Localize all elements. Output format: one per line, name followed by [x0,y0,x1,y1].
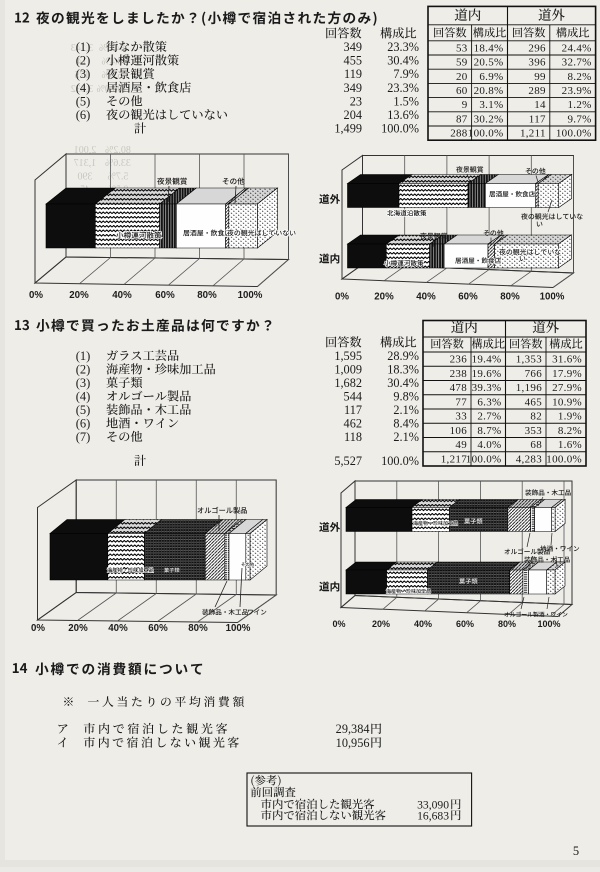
svg-text:0%: 0% [332,619,345,629]
svg-text:0%: 0% [31,623,45,634]
svg-text:0%: 0% [335,292,349,303]
svg-text:10.9%: 10.9% [552,396,582,408]
svg-text:14: 14 [534,99,546,111]
svg-text:2.1%: 2.1% [393,403,419,417]
svg-text:1,196: 1,196 [516,382,542,394]
svg-text:353: 353 [525,425,543,437]
svg-text:8.2%: 8.2% [558,425,582,437]
svg-text:3.1%: 3.1% [479,99,503,111]
svg-text:10,956: 10,956 [336,736,370,750]
svg-text:27.9%: 27.9% [552,382,582,394]
svg-text:20%: 20% [372,619,390,629]
svg-text:204: 204 [344,108,362,122]
svg-text:28.9%: 28.9% [387,349,419,363]
svg-text:(5): (5) [76,94,91,108]
svg-text:23.9%: 23.9% [562,85,592,97]
svg-text:(3): (3) [76,376,91,390]
svg-text:20%: 20% [69,290,89,301]
svg-text:(1): (1) [76,40,91,54]
svg-text:1,211: 1,211 [520,128,546,140]
svg-text:455: 455 [344,54,362,68]
svg-text:(5): (5) [76,403,91,417]
svg-text:465: 465 [525,396,543,408]
svg-text:100%: 100% [226,623,251,634]
svg-text:23.3%: 23.3% [387,40,419,54]
svg-text:1,217: 1,217 [441,453,467,465]
svg-text:77: 77 [455,396,467,408]
svg-text:13.6%: 13.6% [387,108,419,122]
svg-text:20%: 20% [68,623,88,634]
svg-text:289: 289 [528,85,546,97]
svg-text:1,353: 1,353 [516,354,542,366]
svg-text:462: 462 [344,417,362,431]
svg-text:30.2%: 30.2% [474,113,504,125]
svg-text:8.2%: 8.2% [567,71,591,83]
svg-text:59: 59 [456,57,468,69]
svg-text:1,009: 1,009 [334,363,362,377]
svg-text:39.3%: 39.3% [472,382,502,394]
svg-text:30.4%: 30.4% [387,54,419,68]
svg-text:23: 23 [350,94,362,108]
svg-text:18.4%: 18.4% [474,42,504,54]
svg-text:80%: 80% [500,292,520,303]
svg-text:20.5%: 20.5% [474,57,504,69]
svg-text:40%: 40% [108,623,128,634]
svg-text:100%: 100% [540,292,565,303]
svg-text:(7): (7) [76,430,91,444]
svg-text:1,499: 1,499 [334,122,362,136]
svg-text:2.1%: 2.1% [393,430,419,444]
svg-text:236: 236 [450,354,468,366]
svg-text:7.9%: 7.9% [393,67,419,81]
svg-text:(6): (6) [76,417,91,431]
svg-text:19.6%: 19.6% [472,368,502,380]
svg-text:68: 68 [530,439,542,451]
svg-text:31.6%: 31.6% [552,354,582,366]
svg-text:6.3%: 6.3% [477,396,501,408]
svg-text:(4): (4) [76,390,91,404]
svg-text:4.0%: 4.0% [477,439,501,451]
svg-text:9.8%: 9.8% [393,390,419,404]
svg-text:60%: 60% [458,292,478,303]
svg-text:32.7%: 32.7% [562,57,592,69]
svg-text:(1): (1) [76,349,91,363]
svg-text:60%: 60% [456,619,474,629]
svg-text:(3): (3) [76,67,91,81]
svg-text:766: 766 [525,368,543,380]
svg-text:100.0%: 100.0% [381,122,419,136]
svg-text:4,283: 4,283 [516,453,542,465]
svg-text:390: 390 [78,171,93,182]
svg-text:100.0%: 100.0% [466,453,502,465]
svg-text:20%: 20% [374,292,394,303]
svg-text:396: 396 [528,57,546,69]
svg-text:100.0%: 100.0% [381,454,419,468]
svg-text:30.4%: 30.4% [387,376,419,390]
svg-text:19.4%: 19.4% [472,354,502,366]
svg-text:24.4%: 24.4% [562,42,592,54]
svg-text:100.0%: 100.0% [556,128,592,140]
svg-text:238: 238 [450,368,468,380]
svg-text:544: 544 [344,390,362,404]
svg-text:17.9%: 17.9% [552,368,582,380]
svg-text:60: 60 [456,85,468,97]
svg-text:82: 82 [530,411,542,423]
svg-text:8.4%: 8.4% [393,417,419,431]
svg-text:5.3%: 5.3% [102,70,123,81]
svg-text:478: 478 [450,382,468,394]
svg-text:349: 349 [344,81,362,95]
svg-text:1,682: 1,682 [334,376,362,390]
svg-text:296: 296 [528,42,546,54]
svg-text:1.2%: 1.2% [567,99,591,111]
svg-text:29,384: 29,384 [336,722,370,736]
svg-text:40%: 40% [112,290,132,301]
svg-text:20: 20 [456,71,468,83]
svg-text:9.7%: 9.7% [567,113,591,125]
svg-text:9: 9 [462,99,468,111]
svg-text:2.7%: 2.7% [477,411,501,423]
svg-text:80%: 80% [197,290,217,301]
svg-text:33.6%: 33.6% [105,158,131,169]
svg-text:1.5%: 1.5% [393,94,419,108]
svg-text:100%: 100% [537,619,560,629]
svg-text:80%: 80% [498,619,516,629]
svg-text:0%: 0% [29,290,43,301]
svg-text:100%: 100% [238,290,263,301]
svg-text:349: 349 [344,40,362,54]
svg-text:20.8%: 20.8% [474,85,504,97]
svg-text:49: 49 [455,439,467,451]
svg-text:8.7%: 8.7% [477,425,501,437]
svg-text:16,683: 16,683 [417,809,449,822]
svg-text:18.3%: 18.3% [387,363,419,377]
svg-text:(2): (2) [76,363,91,377]
svg-text:100.0%: 100.0% [468,128,504,140]
svg-text:40%: 40% [414,619,432,629]
svg-text:117: 117 [344,403,362,417]
svg-text:33: 33 [455,411,467,423]
svg-text:60%: 60% [148,623,168,634]
svg-text:100.0%: 100.0% [546,453,582,465]
svg-text:5,527: 5,527 [334,454,362,468]
svg-text:118: 118 [344,430,362,444]
svg-text:87: 87 [456,113,468,125]
svg-text:(2): (2) [76,54,91,68]
svg-text:40%: 40% [416,292,436,303]
svg-text:(6): (6) [76,108,91,122]
svg-text:1.6%: 1.6% [558,439,582,451]
svg-text:(4): (4) [76,81,91,95]
svg-text:6.9%: 6.9% [479,71,503,83]
svg-text:106: 106 [450,425,468,437]
svg-text:117: 117 [529,113,546,125]
svg-text:99: 99 [534,71,546,83]
svg-text:80%: 80% [188,623,208,634]
svg-text:53: 53 [456,42,468,54]
svg-text:288: 288 [450,128,468,140]
svg-text:23.3%: 23.3% [387,81,419,95]
svg-text:60%: 60% [155,290,175,301]
svg-text:1,317: 1,317 [74,158,97,169]
svg-text:1.9%: 1.9% [558,411,582,423]
svg-text:5: 5 [573,844,579,858]
svg-text:1,595: 1,595 [334,349,362,363]
svg-text:119: 119 [344,67,362,81]
